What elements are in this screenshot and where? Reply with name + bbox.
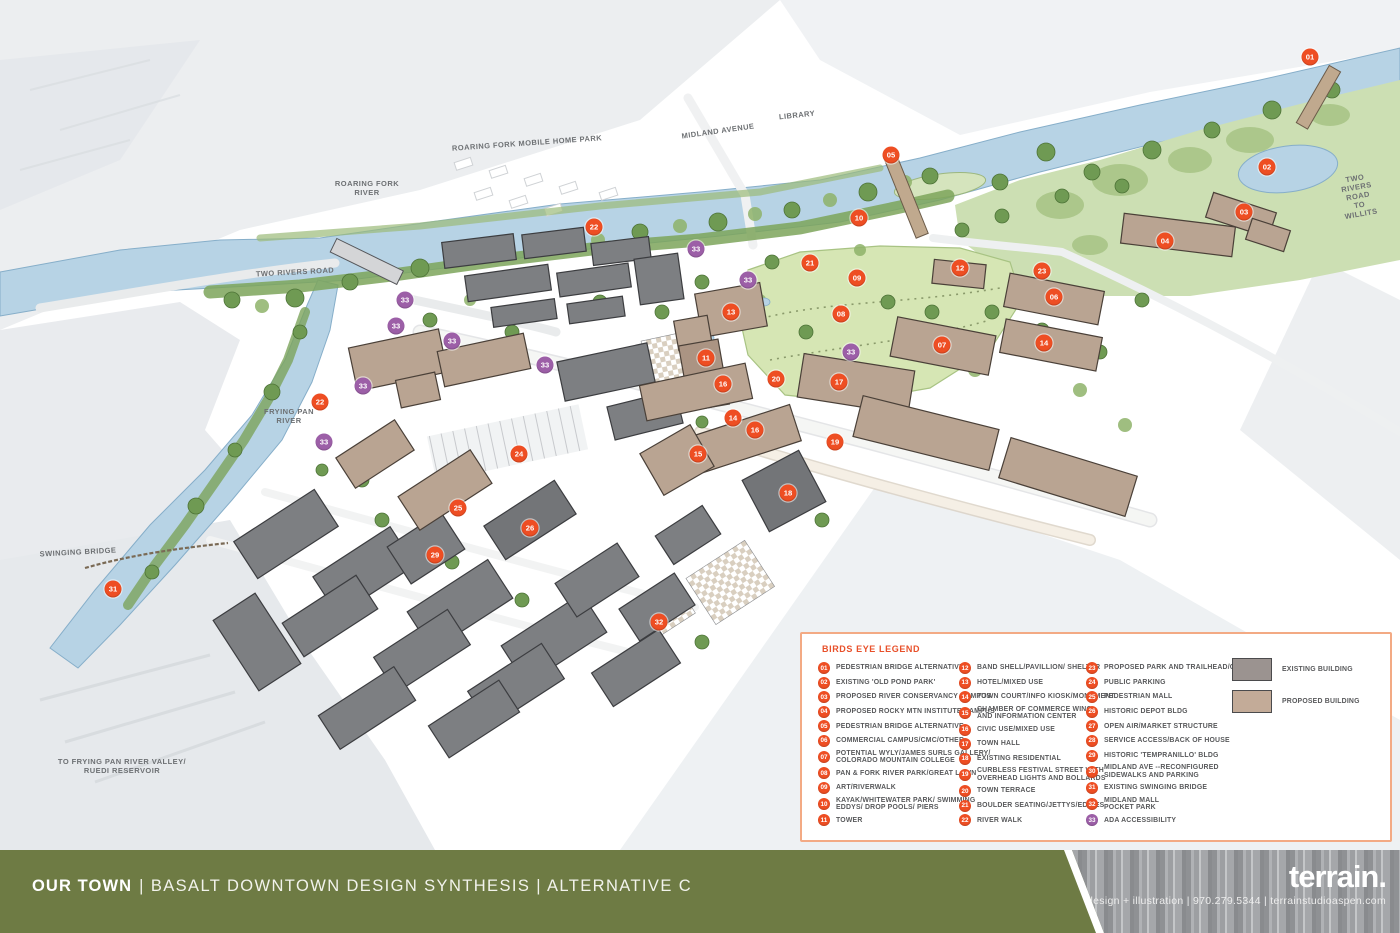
legend-item-number: 03 xyxy=(818,691,830,703)
map-marker-06: 06 xyxy=(1046,289,1063,306)
map-marker-33: 33 xyxy=(388,318,405,335)
legend-swatches: EXISTING BUILDINGPROPOSED BUILDING xyxy=(1232,658,1360,722)
map-marker-29: 29 xyxy=(427,547,444,564)
legend-item-label: PEDESTRIAN BRIDGE ALTERNATIVE xyxy=(836,723,964,731)
map-marker-12: 12 xyxy=(952,260,969,277)
legend-item-label: EXISTING RESIDENTIAL xyxy=(977,755,1061,763)
map-marker-16: 16 xyxy=(715,376,732,393)
map-marker-33: 33 xyxy=(688,241,705,258)
map-marker-10: 10 xyxy=(851,210,868,227)
map-marker-17: 17 xyxy=(831,374,848,391)
map-marker-33: 33 xyxy=(355,378,372,395)
legend-swatch-color xyxy=(1232,658,1272,681)
legend-item-label: ART/RIVERWALK xyxy=(836,784,896,792)
legend-item-label: MIDLAND MALL POCKET PARK xyxy=(1104,797,1159,812)
legend-item-32: 32MIDLAND MALL POCKET PARK xyxy=(1086,797,1261,812)
legend-item-label: COMMERCIAL CAMPUS/CMC/OTHER xyxy=(836,737,964,745)
legend-item-label: EXISTING 'OLD POND PARK' xyxy=(836,679,935,687)
map-marker-08: 08 xyxy=(833,306,850,323)
map-marker-32: 32 xyxy=(651,614,668,631)
map-marker-21: 21 xyxy=(802,255,819,272)
studio-panel: terrain. design + illustration | 970.279… xyxy=(1056,850,1400,933)
map-marker-33: 33 xyxy=(316,434,333,451)
legend-item-label: OPEN AIR/MARKET STRUCTURE xyxy=(1104,723,1218,731)
map-marker-33: 33 xyxy=(537,357,554,374)
legend-title: BIRDS EYE LEGEND xyxy=(822,644,920,654)
birds-eye-legend: BIRDS EYE LEGEND 01PEDESTRIAN BRIDGE ALT… xyxy=(800,632,1392,842)
map-marker-25: 25 xyxy=(450,500,467,517)
poster-title-bold: OUR TOWN xyxy=(32,877,132,896)
legend-swatch-label: EXISTING BUILDING xyxy=(1282,666,1353,673)
legend-item-number: 04 xyxy=(818,706,830,718)
map-label: TWO RIVERS ROAD TO WILLITS xyxy=(1333,170,1382,222)
legend-swatch-label: PROPOSED BUILDING xyxy=(1282,698,1360,705)
legend-swatch-row: PROPOSED BUILDING xyxy=(1232,690,1360,713)
map-marker-24: 24 xyxy=(511,446,528,463)
legend-item-31: 31EXISTING SWINGING BRIDGE xyxy=(1086,782,1261,794)
legend-item-number: 23 xyxy=(1086,662,1098,674)
map-marker-31: 31 xyxy=(105,581,122,598)
legend-item-29: 29HISTORIC 'TEMPRANILLO' BLDG xyxy=(1086,750,1261,762)
legend-item-number: 14 xyxy=(959,691,971,703)
map-marker-05: 05 xyxy=(883,147,900,164)
legend-item-number: 07 xyxy=(818,751,830,763)
legend-item-label: ADA ACCESSIBILITY xyxy=(1104,817,1176,825)
map-marker-22: 22 xyxy=(586,219,603,236)
map-label: FRYING PAN RIVER xyxy=(264,407,314,425)
legend-item-label: MIDLAND AVE --RECONFIGURED SIDEWALKS AND… xyxy=(1104,764,1219,779)
legend-item-number: 24 xyxy=(1086,677,1098,689)
legend-item-number: 18 xyxy=(959,753,971,765)
legend-item-number: 25 xyxy=(1086,691,1098,703)
legend-item-label: EXISTING SWINGING BRIDGE xyxy=(1104,784,1207,792)
legend-item-label: TOWN HALL xyxy=(977,740,1020,748)
legend-item-number: 02 xyxy=(818,677,830,689)
site-plan-map: ROARING FORK MOBILE HOME PARKMIDLAND AVE… xyxy=(0,0,1400,850)
legend-item-number: 05 xyxy=(818,720,830,732)
legend-item-number: 30 xyxy=(1086,766,1098,778)
legend-item-label: HOTEL/MIXED USE xyxy=(977,679,1043,687)
legend-item-number: 01 xyxy=(818,662,830,674)
legend-item-number: 29 xyxy=(1086,750,1098,762)
legend-item-label: PEDESTRIAN BRIDGE ALTERNATIVE xyxy=(836,664,964,672)
legend-item-number: 27 xyxy=(1086,720,1098,732)
legend-item-number: 33 xyxy=(1086,814,1098,826)
legend-item-label: TOWN TERRACE xyxy=(977,787,1036,795)
legend-item-28: 28SERVICE ACCESS/BACK OF HOUSE xyxy=(1086,735,1261,747)
legend-item-label: PAN & FORK RIVER PARK/GREAT LAWN xyxy=(836,770,976,778)
map-marker-33: 33 xyxy=(843,344,860,361)
map-label: TO FRYING PAN RIVER VALLEY/ RUEDI RESERV… xyxy=(58,757,186,775)
legend-item-number: 08 xyxy=(818,767,830,779)
map-marker-09: 09 xyxy=(849,270,866,287)
map-marker-15: 15 xyxy=(690,446,707,463)
legend-item-number: 31 xyxy=(1086,782,1098,794)
map-marker-26: 26 xyxy=(522,520,539,537)
studio-contact: design + illustration | 970.279.5344 | t… xyxy=(1056,895,1386,907)
map-marker-22: 22 xyxy=(312,394,329,411)
legend-item-label: HISTORIC 'TEMPRANILLO' BLDG xyxy=(1104,752,1219,760)
legend-item-label: CIVIC USE/MIXED USE xyxy=(977,726,1055,734)
legend-item-number: 19 xyxy=(959,769,971,781)
legend-item-number: 16 xyxy=(959,724,971,736)
legend-swatch-row: EXISTING BUILDING xyxy=(1232,658,1360,681)
title-bar: OUR TOWN | BASALT DOWNTOWN DESIGN SYNTHE… xyxy=(0,850,1400,933)
legend-item-number: 12 xyxy=(959,662,971,674)
legend-item-number: 26 xyxy=(1086,706,1098,718)
map-marker-18: 18 xyxy=(780,485,797,502)
legend-item-number: 17 xyxy=(959,738,971,750)
poster: ROARING FORK MOBILE HOME PARKMIDLAND AVE… xyxy=(0,0,1400,933)
legend-item-label: TOWER xyxy=(836,817,863,825)
legend-item-number: 09 xyxy=(818,782,830,794)
map-marker-23: 23 xyxy=(1034,263,1051,280)
legend-item-number: 10 xyxy=(818,798,830,810)
map-marker-02: 02 xyxy=(1259,159,1276,176)
legend-item-number: 20 xyxy=(959,785,971,797)
legend-item-label: PUBLIC PARKING xyxy=(1104,679,1166,687)
map-marker-13: 13 xyxy=(723,304,740,321)
legend-item-label: KAYAK/WHITEWATER PARK/ SWIMMING EDDYS/ D… xyxy=(836,797,975,812)
map-marker-04: 04 xyxy=(1157,233,1174,250)
map-marker-07: 07 xyxy=(934,337,951,354)
map-marker-33: 33 xyxy=(740,272,757,289)
map-marker-33: 33 xyxy=(397,292,414,309)
map-marker-14: 14 xyxy=(725,410,742,427)
poster-title-rest: | BASALT DOWNTOWN DESIGN SYNTHESIS | ALT… xyxy=(139,877,692,896)
map-marker-19: 19 xyxy=(827,434,844,451)
studio-logo: terrain. xyxy=(1056,862,1386,892)
legend-item-27: 27OPEN AIR/MARKET STRUCTURE xyxy=(1086,720,1261,732)
legend-item-number: 32 xyxy=(1086,798,1098,810)
legend-item-label: PEDESTRIAN MALL xyxy=(1104,693,1172,701)
legend-item-label: CHAMBER OF COMMERCE WING AND INFORMATION… xyxy=(977,706,1092,721)
map-marker-16: 16 xyxy=(747,422,764,439)
legend-item-number: 22 xyxy=(959,814,971,826)
legend-item-label: RIVER WALK xyxy=(977,817,1022,825)
legend-item-label: HISTORIC DEPOT BLDG xyxy=(1104,708,1188,716)
map-marker-14: 14 xyxy=(1036,335,1053,352)
map-label: ROARING FORK RIVER xyxy=(335,179,399,197)
legend-swatch-color xyxy=(1232,690,1272,713)
legend-item-number: 21 xyxy=(959,800,971,812)
legend-item-label: SERVICE ACCESS/BACK OF HOUSE xyxy=(1104,737,1230,745)
legend-item-number: 28 xyxy=(1086,735,1098,747)
map-marker-33: 33 xyxy=(444,333,461,350)
map-marker-20: 20 xyxy=(768,371,785,388)
map-marker-01: 01 xyxy=(1302,49,1319,66)
legend-item-number: 15 xyxy=(959,707,971,719)
legend-item-label: BAND SHELL/PAVILLION/ SHELTER xyxy=(977,664,1100,672)
legend-item-number: 11 xyxy=(818,814,830,826)
legend-item-33: 33ADA ACCESSIBILITY xyxy=(1086,814,1261,826)
poster-title: OUR TOWN | BASALT DOWNTOWN DESIGN SYNTHE… xyxy=(32,850,692,933)
map-marker-11: 11 xyxy=(698,350,715,367)
legend-item-number: 13 xyxy=(959,677,971,689)
legend-item-30: 30MIDLAND AVE --RECONFIGURED SIDEWALKS A… xyxy=(1086,764,1261,779)
map-marker-03: 03 xyxy=(1236,204,1253,221)
legend-item-number: 06 xyxy=(818,735,830,747)
